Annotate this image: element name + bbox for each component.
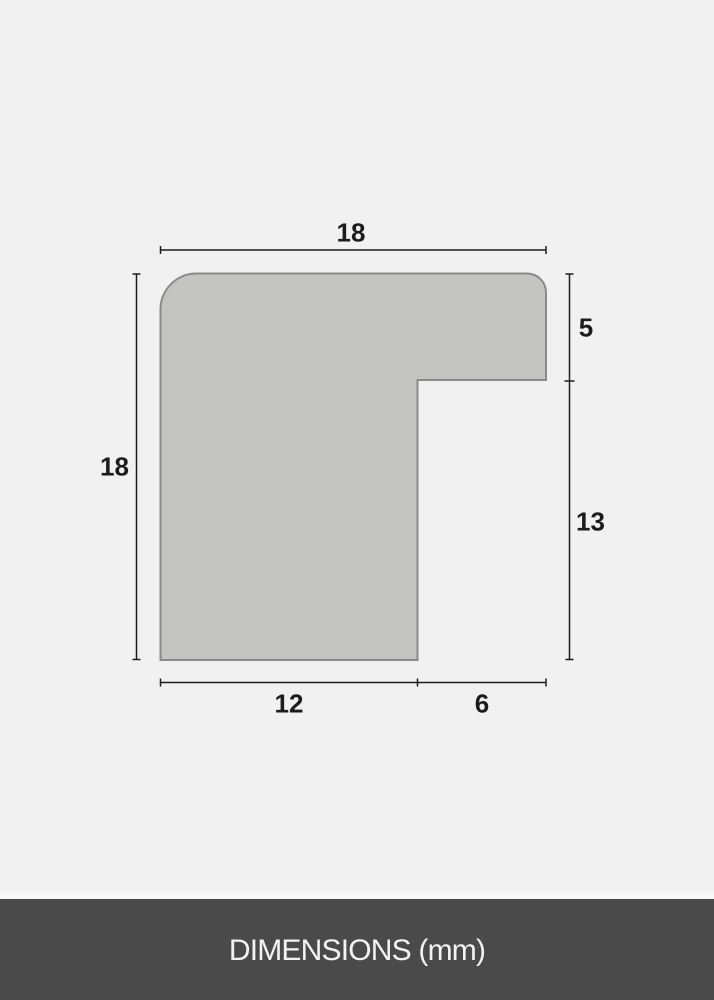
svg-text:18: 18: [337, 218, 366, 248]
svg-text:13: 13: [576, 507, 605, 537]
svg-text:DIMENSIONS (mm): DIMENSIONS (mm): [229, 934, 485, 967]
svg-text:6: 6: [475, 689, 489, 719]
svg-text:18: 18: [100, 452, 129, 482]
svg-text:12: 12: [275, 689, 304, 719]
svg-text:5: 5: [579, 313, 593, 343]
